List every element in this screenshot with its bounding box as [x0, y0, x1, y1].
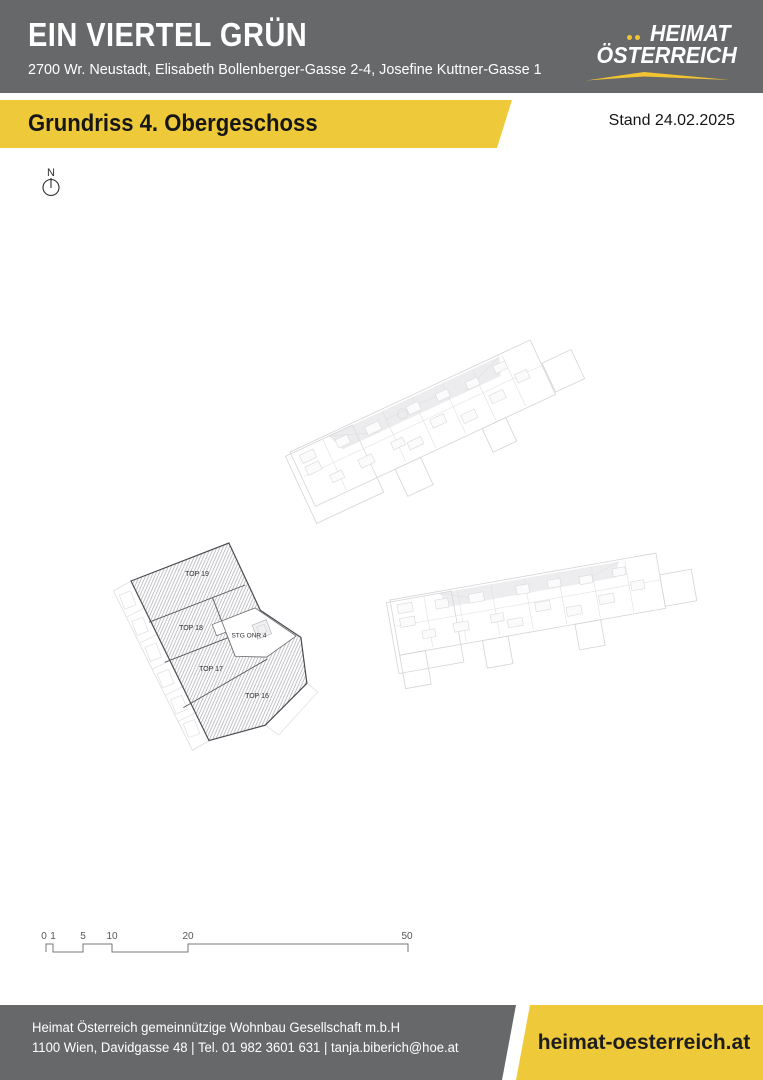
scale-tick-20: 20 [182, 931, 194, 942]
footer-contact-line: 1100 Wien, Davidgasse 48 | Tel. 01 982 3… [32, 1038, 459, 1058]
highlighted-unit-block [112, 531, 331, 772]
staircase-label: STG ONR 4 [231, 633, 266, 640]
scale-tick-1: 1 [50, 931, 56, 942]
document-page: { "header": { "project_title": "EIN VIER… [0, 0, 763, 1080]
floor-plan: N [0, 0, 763, 1080]
scale-tick-5: 5 [80, 931, 86, 942]
building-east-wing-outline [386, 548, 703, 690]
scale-tick-10: 10 [106, 931, 118, 942]
north-label: N [47, 167, 55, 179]
scale-tick-50: 50 [401, 931, 413, 942]
footer-company-line: Heimat Österreich gemeinnützige Wohnbau … [32, 1018, 459, 1038]
scale-tick-0: 0 [41, 931, 47, 942]
footer-band: Heimat Österreich gemeinnützige Wohnbau … [0, 1005, 763, 1080]
north-compass-icon: N [43, 167, 59, 196]
unit-label-top18: TOP 18 [179, 625, 203, 632]
scale-bar: 0 1 5 10 20 50 [41, 931, 413, 952]
scale-bar-line [46, 944, 408, 952]
unit-block-outline [131, 531, 326, 752]
unit-label-top19: TOP 19 [185, 571, 209, 578]
building-north-wing-outline [285, 326, 599, 536]
unit-label-top16: TOP 16 [245, 693, 269, 700]
footer-website: heimat-oesterreich.at [525, 1005, 763, 1080]
unit-label-top17: TOP 17 [199, 666, 223, 673]
